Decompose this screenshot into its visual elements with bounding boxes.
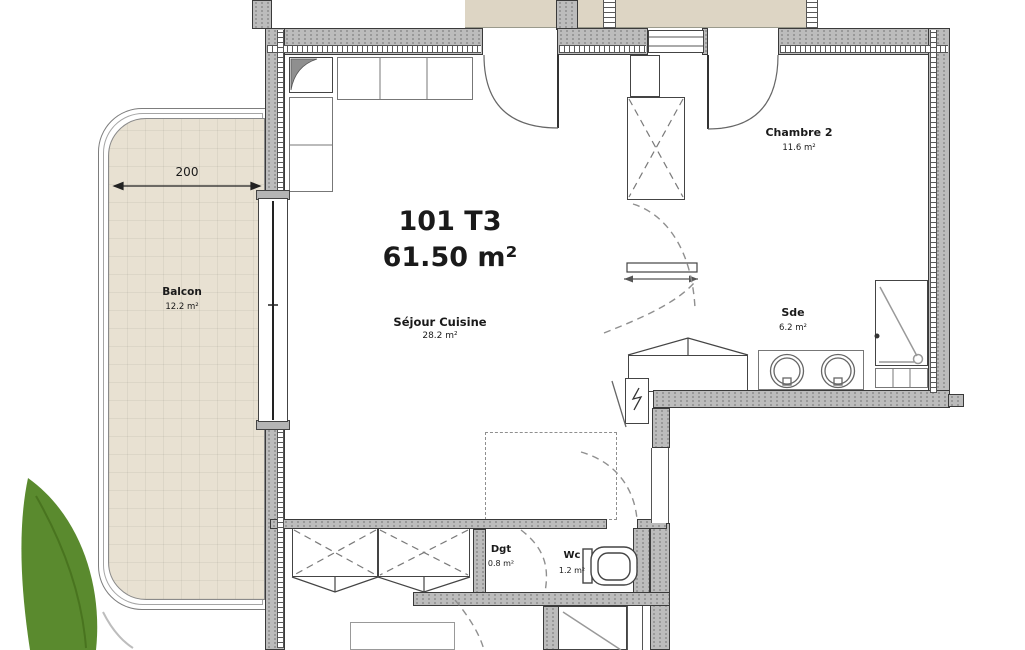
- wall-bottom-horizontal: [413, 592, 670, 606]
- dimension-label: 200: [157, 166, 217, 179]
- insulation-right: [930, 30, 937, 393]
- table-furniture: [350, 622, 455, 650]
- kitchen-counter-left: [289, 97, 333, 192]
- wall-bottom-column: [543, 606, 559, 650]
- wall-stub-top-left: [252, 0, 272, 29]
- room-label-sejour: Séjour Cuisine: [385, 316, 495, 329]
- room-label-balcon: Balcon: [147, 287, 217, 299]
- insulation-top-d: [780, 45, 948, 53]
- plan-title-unit: 101 T3: [365, 207, 535, 237]
- room-area-sejour: 28.2 m²: [385, 332, 495, 342]
- terrace-insulation-ticks: [603, 0, 616, 28]
- electrical-box: [625, 378, 649, 424]
- wall-stub-top-mid: [556, 0, 578, 30]
- sliding-door-sde: [624, 263, 698, 283]
- cabinet-under-shower: [875, 368, 928, 388]
- wall-column-bottom-right: [650, 523, 670, 650]
- bay-window: [258, 198, 288, 422]
- room-area-balcon: 12.2 m²: [147, 303, 217, 312]
- room-area-sde: 6.2 m²: [763, 324, 823, 333]
- folding-door-symbols: [292, 577, 470, 592]
- room-label-chambre2: Chambre 2: [754, 127, 844, 139]
- wall-mid-horizontal-a: [270, 519, 607, 529]
- insulation-top-a: [267, 45, 481, 53]
- door-sejour: [484, 55, 558, 128]
- room-label-sde: Sde: [763, 307, 823, 319]
- terrace-insulation-ticks-2: [806, 0, 818, 28]
- room-area-wc: 1.2 m²: [550, 567, 594, 576]
- wall-sde-bottom: [653, 390, 950, 408]
- window-top: [648, 30, 704, 53]
- shower-tray: [875, 280, 928, 366]
- wall-wc-right: [633, 528, 650, 600]
- insulation-left-lower: [277, 430, 284, 648]
- door-opening-below: [627, 606, 643, 650]
- closet-bottom-1: [292, 528, 378, 577]
- room-label-dgt: Dgt: [480, 544, 522, 555]
- terrace-floor: [465, 0, 806, 28]
- plan-title-area: 61.50 m²: [355, 243, 545, 273]
- room-area-chambre2: 11.6 m²: [754, 144, 844, 153]
- shower-room-below: [557, 606, 627, 650]
- room-label-wc: Wc: [552, 550, 592, 561]
- door-opening-hall: [651, 448, 669, 523]
- closet-bottom-2: [378, 528, 470, 577]
- dashed-zone: [485, 432, 617, 520]
- insulation-top-b: [559, 45, 646, 53]
- wall-step: [652, 408, 670, 448]
- balcony-floor: [108, 118, 265, 600]
- closet-chambre2: [627, 97, 685, 200]
- floor-plan: 101 T3 61.50 m² Séjour Cuisine 28.2 m² C…: [0, 0, 1025, 650]
- insulation-left-upper: [277, 30, 284, 193]
- cupboard-chambre2: [630, 55, 660, 97]
- door-chambre2-top: [708, 55, 778, 129]
- vanity-unit: [758, 350, 864, 390]
- room-area-dgt: 0.8 m²: [480, 560, 522, 569]
- kitchen-corner-unit: [289, 57, 333, 93]
- wall-sde-notch: [948, 394, 964, 407]
- kitchen-counter-top: [337, 57, 473, 100]
- closet-sde-top: [628, 338, 748, 355]
